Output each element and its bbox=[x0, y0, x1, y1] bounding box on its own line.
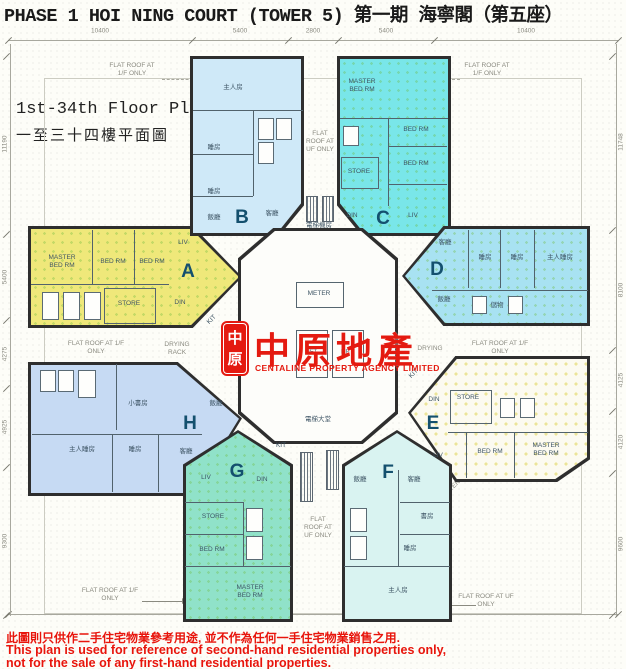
bathroom-fixture bbox=[508, 296, 523, 314]
stair-hatch bbox=[322, 196, 334, 222]
bathroom-fixture bbox=[246, 536, 263, 560]
wall bbox=[388, 118, 389, 206]
dim-label: 5400 bbox=[379, 28, 393, 35]
disclaimer-en-line2: not for the sale of any first-hand resid… bbox=[6, 656, 331, 669]
room-label: 客廳 bbox=[266, 210, 279, 218]
room-label: STORE bbox=[118, 300, 140, 308]
room-label: 客廳 bbox=[408, 476, 421, 484]
wall bbox=[193, 196, 253, 197]
room-label: 飯廳 bbox=[438, 296, 451, 304]
wall bbox=[243, 502, 244, 566]
dim-label: 11190 bbox=[2, 135, 9, 152]
dim-tick bbox=[609, 470, 616, 477]
dim-label: 4275 bbox=[2, 347, 9, 361]
unit-letter-c: C bbox=[376, 208, 390, 230]
dim-label: 5400 bbox=[233, 28, 247, 35]
lift-lobby-label: 電梯大堂 bbox=[303, 416, 333, 424]
arrow-line bbox=[142, 601, 182, 602]
room-label: BED RM bbox=[139, 258, 164, 266]
wall bbox=[389, 146, 447, 147]
room-label: MASTER BED RM bbox=[342, 78, 382, 94]
bathroom-fixture bbox=[258, 118, 274, 140]
room-label: MASTER BED RM bbox=[526, 442, 566, 458]
flat-roof-note-center-top: FLAT ROOF AT UF ONLY bbox=[303, 130, 337, 154]
flat-roof-note-mid-right: FLAT ROOF AT 1/F ONLY bbox=[470, 340, 530, 356]
page-title: PHASE 1 HOI NING COURT (TOWER 5) 第一期 海寧閣… bbox=[4, 1, 562, 27]
room-label: LIV bbox=[201, 474, 211, 482]
room-label: LIV bbox=[178, 239, 188, 247]
room-label: BED RM bbox=[403, 160, 428, 168]
centaline-seal-logo: 中 原 bbox=[221, 321, 249, 376]
room-label: 睡房 bbox=[208, 144, 221, 152]
flat-roof-note-mid-left: FLAT ROOF AT 1/F ONLY bbox=[66, 340, 126, 356]
room-label: DIN bbox=[428, 396, 439, 404]
unit-letter-f: F bbox=[382, 462, 394, 484]
dim-label: 9600 bbox=[618, 537, 625, 551]
disclaimer-en-line1: This plan is used for reference of secon… bbox=[6, 643, 446, 657]
room-label: 飯廳 bbox=[208, 214, 221, 222]
dim-tick bbox=[609, 347, 616, 354]
wall bbox=[466, 432, 467, 478]
room-label: 書房 bbox=[421, 513, 434, 521]
room-label: LIV bbox=[433, 452, 443, 460]
stair-hatch bbox=[326, 450, 339, 490]
wall bbox=[432, 290, 588, 291]
dim-tick bbox=[3, 317, 10, 324]
room-label: MASTER BED RM bbox=[42, 254, 82, 270]
wall bbox=[400, 534, 450, 535]
wall bbox=[92, 230, 93, 284]
room-label: 儲物 bbox=[491, 302, 504, 310]
dim-tick bbox=[609, 408, 616, 415]
dim-label: 4120 bbox=[618, 435, 625, 449]
wall bbox=[468, 230, 469, 288]
bathroom-fixture bbox=[350, 536, 367, 560]
wall bbox=[158, 434, 159, 492]
dim-label: 8100 bbox=[618, 283, 625, 297]
room-label: LIV bbox=[408, 212, 418, 220]
room-label: 睡房 bbox=[479, 254, 492, 262]
bathroom-fixture bbox=[276, 118, 292, 140]
bathroom-fixture bbox=[42, 292, 59, 320]
room-label: 小書房 bbox=[128, 400, 148, 408]
unit-letter-a: A bbox=[181, 261, 195, 283]
flat-roof-note-top-left: FLAT ROOF AT 1/F ONLY bbox=[104, 62, 160, 78]
wall bbox=[193, 110, 303, 111]
bathroom-fixture bbox=[246, 508, 263, 532]
room-label: 飯廳 bbox=[210, 400, 223, 408]
room-label: 客廳 bbox=[439, 239, 452, 247]
dim-line-bottom bbox=[8, 614, 618, 615]
room-label: STORE bbox=[348, 168, 370, 176]
flat-roof-note-center-bottom: FLAT ROOF AT UF ONLY bbox=[301, 516, 335, 540]
bathroom-fixture bbox=[472, 296, 487, 314]
dim-tick bbox=[3, 231, 10, 238]
room-label: BED RM bbox=[100, 258, 125, 266]
unit-letter-d: D bbox=[430, 259, 444, 281]
room-label: 睡房 bbox=[208, 188, 221, 196]
dim-label: 4125 bbox=[618, 373, 625, 387]
wall bbox=[340, 118, 448, 119]
wall bbox=[514, 432, 515, 478]
room-label: BED RM bbox=[199, 546, 224, 554]
lift-machine-label: 電梯機房 bbox=[304, 222, 334, 230]
wall bbox=[134, 230, 135, 284]
wall bbox=[193, 154, 253, 155]
room-label: 飯廳 bbox=[354, 476, 367, 484]
flat-roof-note-bottom-right: FLAT ROOF AT UF ONLY bbox=[456, 593, 516, 609]
wall bbox=[31, 284, 169, 285]
floor-plan-page: PHASE 1 HOI NING COURT (TOWER 5) 第一期 海寧閣… bbox=[0, 0, 626, 669]
wall bbox=[253, 110, 254, 196]
room-label: STORE bbox=[202, 513, 224, 521]
dim-label: 4925 bbox=[2, 420, 9, 434]
dim-tick bbox=[3, 612, 10, 619]
wall bbox=[500, 230, 501, 288]
dim-tick bbox=[3, 464, 10, 471]
wall bbox=[389, 184, 447, 185]
stair-hatch bbox=[306, 196, 318, 222]
room-label: 睡房 bbox=[511, 254, 524, 262]
room-label: 主人睡房 bbox=[57, 446, 107, 454]
wall bbox=[116, 364, 117, 430]
room-label: 主人房 bbox=[388, 587, 408, 595]
wall bbox=[534, 230, 535, 288]
room-label: DIN bbox=[256, 476, 267, 484]
room-label: KIT bbox=[276, 442, 286, 450]
wall bbox=[344, 566, 450, 567]
flat-roof-note-bottom-left: FLAT ROOF AT 1/F ONLY bbox=[80, 587, 140, 603]
wall bbox=[185, 566, 291, 567]
seal-char: 中 bbox=[227, 328, 242, 348]
dim-tick bbox=[615, 37, 622, 44]
room-label: 主人房 bbox=[223, 84, 243, 92]
room-label: 主人睡房 bbox=[546, 254, 574, 262]
room-label: DIN bbox=[346, 212, 357, 220]
dim-line-left bbox=[10, 44, 11, 616]
unit-letter-e: E bbox=[427, 413, 440, 435]
wall bbox=[400, 502, 450, 503]
unit-letter-h: H bbox=[183, 413, 197, 435]
bathroom-fixture bbox=[500, 398, 515, 418]
bathroom-fixture bbox=[350, 508, 367, 532]
bathroom-fixture bbox=[520, 398, 535, 418]
dim-tick bbox=[609, 53, 616, 60]
meter-label: METER bbox=[308, 290, 331, 298]
dim-label: 10400 bbox=[517, 28, 535, 35]
room-label: STORE bbox=[457, 394, 479, 402]
room-label: BED RM bbox=[477, 448, 502, 456]
bathroom-fixture bbox=[58, 370, 74, 392]
dim-tick bbox=[3, 385, 10, 392]
dim-tick bbox=[3, 53, 10, 60]
room-label: 睡房 bbox=[129, 446, 142, 454]
room-label: BED RM bbox=[403, 126, 428, 134]
bathroom-fixture bbox=[84, 292, 101, 320]
wall bbox=[32, 434, 202, 435]
wall bbox=[185, 502, 243, 503]
dim-tick bbox=[609, 227, 616, 234]
centaline-logo-subtitle: CENTALINE PROPERTY AGENCY LIMITED bbox=[255, 363, 440, 373]
dim-label: 10400 bbox=[91, 28, 109, 35]
bathroom-fixture bbox=[63, 292, 80, 320]
room-label: 睡房 bbox=[404, 545, 417, 553]
wall bbox=[112, 434, 113, 492]
wall bbox=[398, 470, 399, 566]
unit-letter-b: B bbox=[235, 207, 249, 229]
stair-hatch bbox=[300, 452, 313, 502]
dim-label: 5400 bbox=[2, 270, 9, 284]
room-label: MASTER BED RM bbox=[229, 584, 271, 600]
seal-char: 原 bbox=[227, 349, 242, 369]
bathroom-fixture bbox=[40, 370, 56, 392]
bathroom-fixture bbox=[343, 126, 359, 146]
room-label: 客廳 bbox=[180, 448, 193, 456]
flat-roof-note-top-right: FLAT ROOF AT 1/F ONLY bbox=[459, 62, 515, 78]
dim-line-right bbox=[616, 44, 617, 616]
bathroom-fixture bbox=[258, 142, 274, 164]
wall bbox=[448, 432, 588, 433]
dim-label: 11748 bbox=[618, 133, 625, 151]
room-label: DIN bbox=[174, 299, 185, 307]
dim-label: 2800 bbox=[306, 28, 320, 35]
unit-letter-g: G bbox=[230, 461, 245, 483]
dim-label: 9300 bbox=[2, 534, 9, 548]
bathroom-fixture bbox=[78, 370, 96, 398]
wall bbox=[185, 534, 243, 535]
drying-rack-label: DRYING RACK bbox=[159, 341, 195, 357]
dim-line-top bbox=[8, 40, 618, 41]
